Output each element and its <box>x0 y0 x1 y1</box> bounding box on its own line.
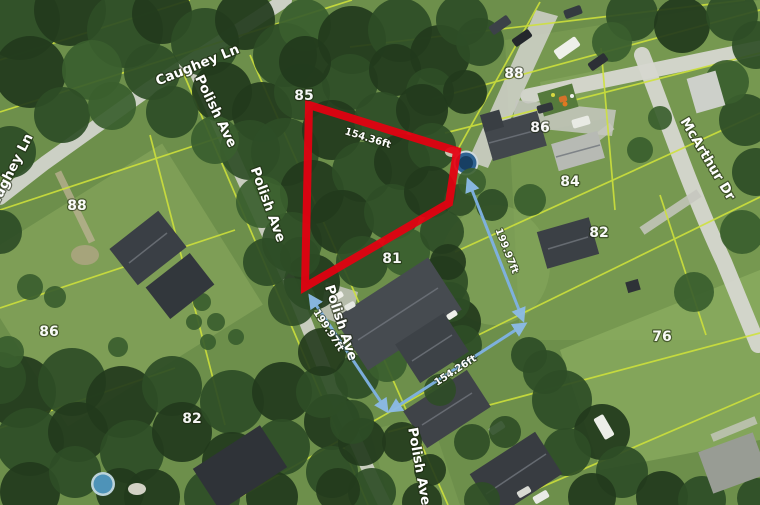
parcel-81: 81 <box>382 251 401 267</box>
aerial-map-canvas: 154.36ft 199.97ft 199.97ft 154.26ft 85 8… <box>0 0 760 505</box>
parcel-85: 85 <box>294 88 313 104</box>
parcel-86-right: 86 <box>530 120 549 136</box>
parcel-82-left: 82 <box>182 411 201 427</box>
parcel-88-left: 88 <box>67 198 86 214</box>
aerial-map-view[interactable]: 154.36ft 199.97ft 199.97ft 154.26ft 85 8… <box>0 0 760 505</box>
parcel-76: 76 <box>652 329 671 345</box>
parcel-88-right: 88 <box>504 66 523 82</box>
parcel-84: 84 <box>560 174 580 190</box>
pool-deck-2 <box>128 483 146 495</box>
parcel-86-left: 86 <box>39 324 58 340</box>
round-pool-water <box>459 156 473 170</box>
round-pool-2 <box>94 475 113 494</box>
parcel-82-right: 82 <box>589 225 608 241</box>
